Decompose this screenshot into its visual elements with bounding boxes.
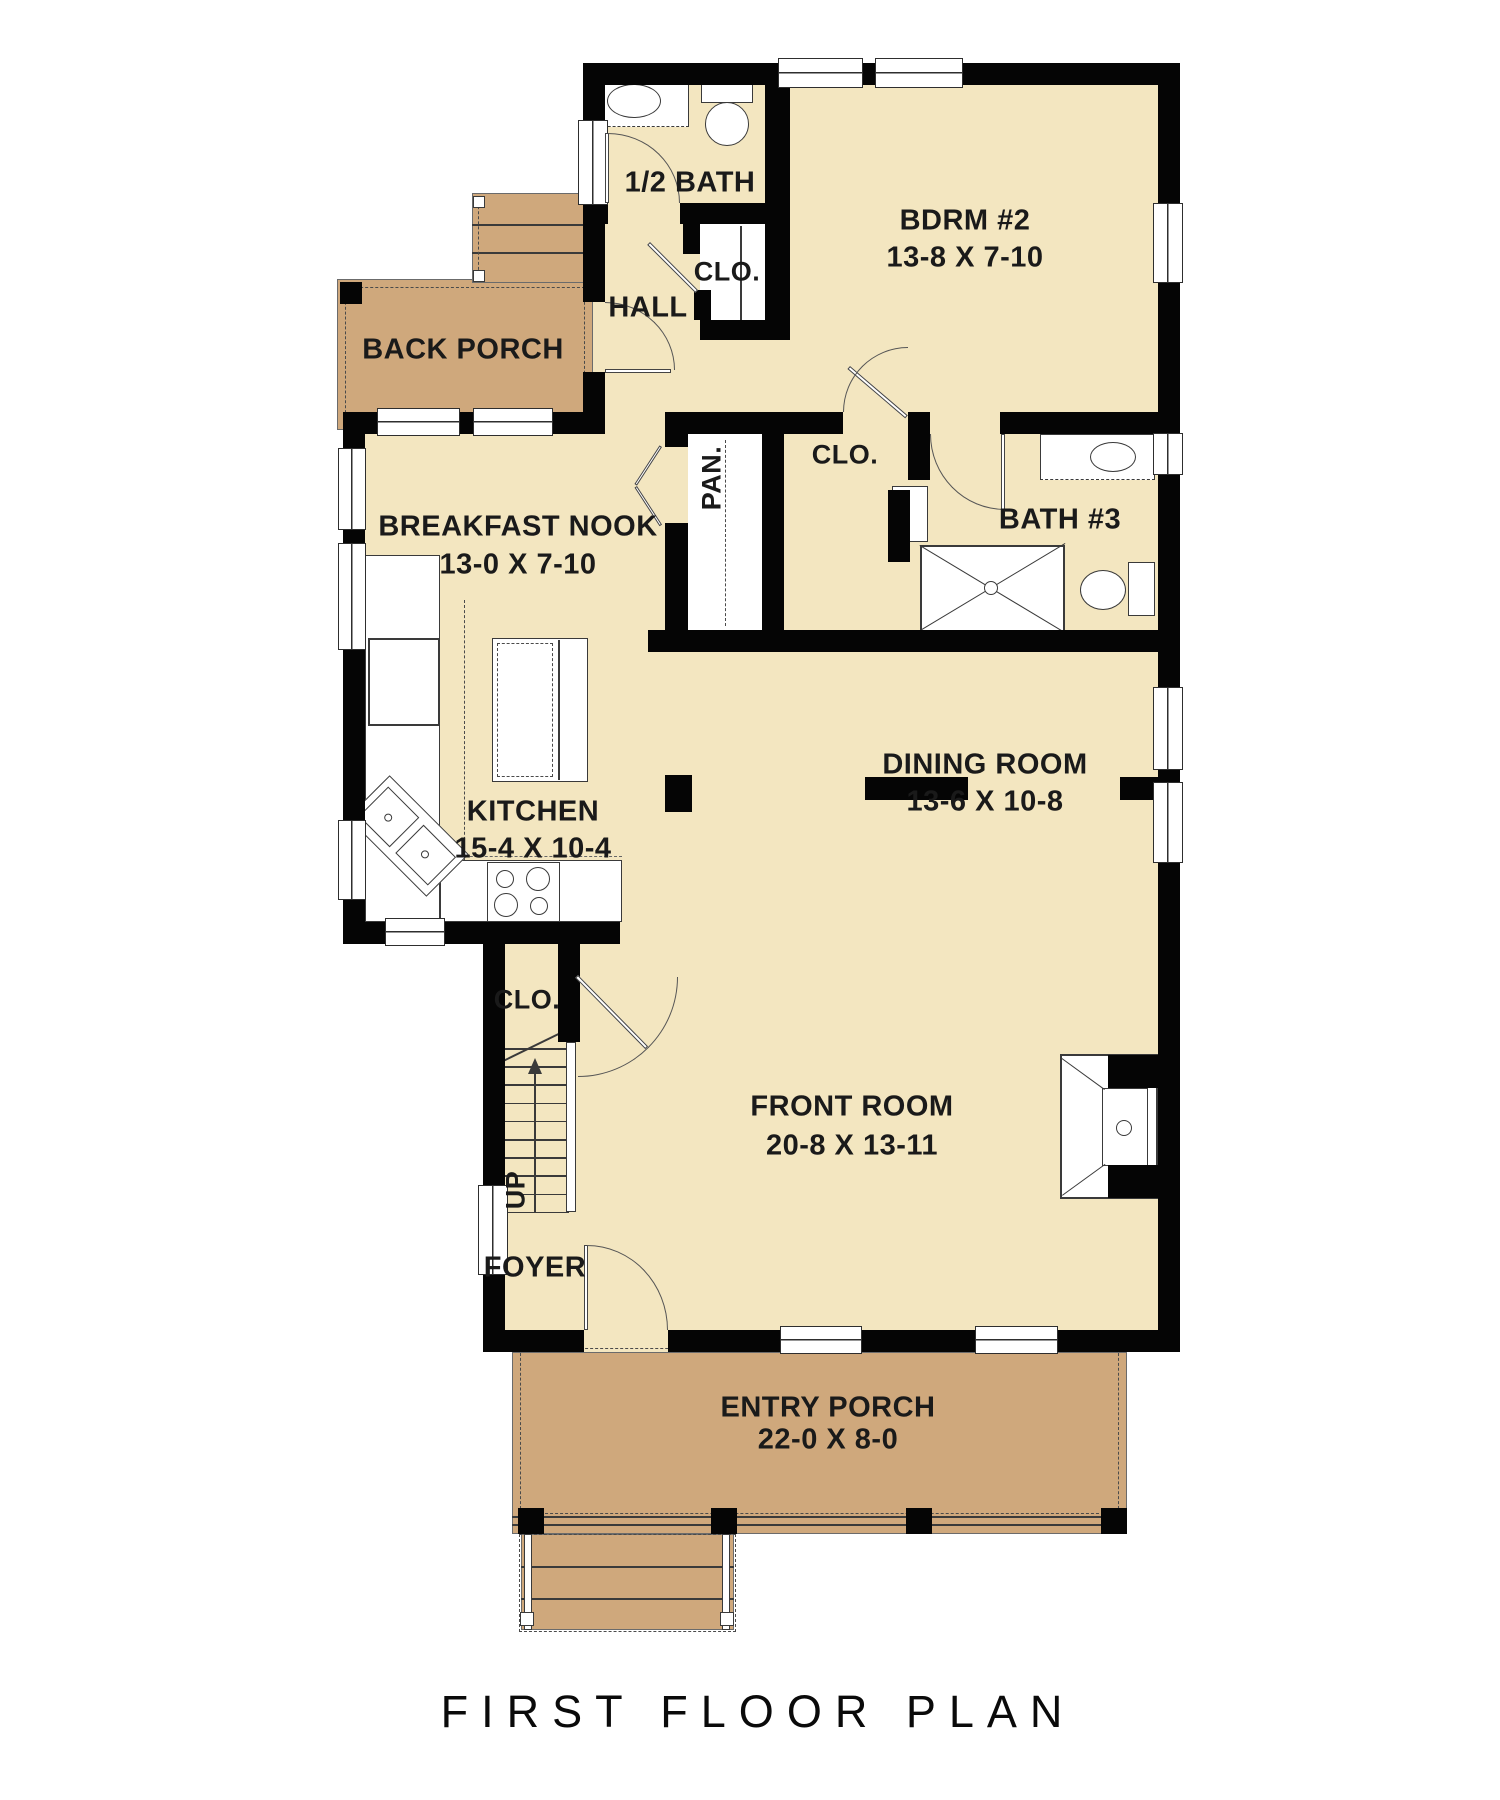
porch-post: [518, 1508, 544, 1534]
stair-tread: [505, 1157, 569, 1159]
wall-segment: [683, 222, 700, 254]
porch-rail: [512, 1516, 1127, 1518]
room-label-front-room: FRONT ROOM: [750, 1091, 953, 1124]
wall-segment: [665, 775, 692, 812]
wall-segment: [668, 1330, 780, 1352]
room-label-kitchen: KITCHEN: [467, 796, 599, 829]
steps-edge-dashed: [519, 1534, 736, 1632]
stairs-up-label: UP: [501, 1171, 532, 1210]
stair-tread: [505, 1212, 569, 1214]
wall-segment: [343, 922, 385, 944]
wall-segment: [460, 412, 473, 434]
window: [1153, 203, 1183, 283]
room-label-entry-porch: ENTRY PORCH: [721, 1392, 936, 1425]
burner: [496, 870, 514, 888]
floor-plan: 1/2 BATH HALL CLO. BDRM #2 13-8 X 7-10 B…: [0, 0, 1500, 1800]
porch-newel-post: [520, 1612, 534, 1626]
window: [1153, 433, 1183, 475]
step-line: [521, 1598, 734, 1600]
room-label-dining: DINING ROOM: [882, 749, 1087, 782]
room-label-half-bath: 1/2 BATH: [625, 167, 756, 200]
wall-segment: [445, 922, 620, 944]
stair-arrow-head: [528, 1058, 542, 1074]
wall-segment: [343, 650, 365, 820]
room-dims-kitchen: 15-4 X 10-4: [454, 833, 611, 866]
burner: [494, 893, 518, 917]
step-line: [472, 224, 593, 226]
fireplace-flue: [1116, 1120, 1132, 1136]
window: [1153, 782, 1183, 863]
window: [338, 448, 366, 530]
room-label-back-porch: BACK PORCH: [362, 334, 564, 367]
window: [578, 120, 608, 205]
wall-segment: [1058, 1330, 1180, 1352]
wall-segment: [762, 412, 784, 652]
porch-rail: [512, 1524, 1127, 1526]
wall-segment: [483, 944, 505, 1185]
window: [778, 58, 863, 88]
room-dims-front-room: 20-8 X 13-11: [766, 1130, 938, 1163]
room-label-bdrm2: BDRM #2: [900, 205, 1031, 238]
wall-segment: [483, 1275, 505, 1352]
wall-segment: [1108, 1055, 1158, 1088]
window: [338, 543, 366, 650]
stair-tread: [505, 1048, 569, 1050]
page-title: FIRST FLOOR PLAN: [441, 1686, 1076, 1738]
toilet-bowl: [705, 102, 749, 146]
porch-post: [1101, 1508, 1127, 1534]
step-line: [472, 252, 593, 254]
window: [385, 918, 445, 946]
toilet-bowl: [1080, 570, 1126, 610]
step-line: [521, 1566, 734, 1568]
window: [975, 1326, 1058, 1354]
stair-tread: [505, 1084, 569, 1086]
room-label-pantry: PAN.: [697, 446, 728, 511]
shower-drain: [984, 581, 998, 595]
wall-segment: [908, 412, 930, 480]
wall-segment: [1158, 475, 1180, 687]
upper-cabinet-dashed: [464, 600, 465, 860]
wall-segment: [665, 412, 688, 447]
wall-segment: [862, 1330, 975, 1352]
wall-segment: [1158, 63, 1180, 203]
window: [875, 58, 963, 88]
stair-tread: [505, 1121, 569, 1123]
back-porch-steps: [472, 193, 593, 283]
wall-segment: [583, 372, 605, 434]
wall-segment: [1158, 283, 1180, 433]
window: [473, 408, 553, 436]
bath3-sink: [1090, 442, 1136, 472]
refrigerator: [368, 638, 440, 726]
window: [1153, 687, 1183, 770]
wall-segment: [888, 490, 910, 562]
room-label-hall: HALL: [608, 292, 687, 325]
wall-segment: [765, 63, 790, 340]
room-label-hall-closet: CLO.: [694, 257, 761, 288]
room-label-bath3-closet: CLO.: [812, 440, 879, 471]
wall-segment: [583, 203, 608, 224]
porch-newel-post: [473, 196, 485, 208]
porch-post: [711, 1508, 737, 1534]
porch-post: [906, 1508, 932, 1534]
wall-segment: [863, 63, 875, 85]
wall-segment: [1000, 412, 1180, 434]
wall-segment: [343, 412, 377, 434]
wall-segment: [963, 63, 1180, 85]
wall-segment: [1108, 1165, 1158, 1198]
toilet-tank: [1128, 562, 1155, 616]
step-rail-dashed: [478, 196, 479, 280]
stair-tread: [505, 1103, 569, 1105]
room-label-stairs-closet: CLO.: [494, 985, 561, 1016]
wall-segment: [1158, 863, 1180, 1352]
room-dims-bdrm2: 13-8 X 7-10: [886, 242, 1043, 275]
room-label-breakfast-nook: BREAKFAST NOOK: [378, 511, 657, 544]
burner: [530, 897, 548, 915]
wall-segment: [700, 320, 790, 340]
porch-newel-post: [720, 1612, 734, 1626]
burner: [526, 867, 550, 891]
stair-rail: [566, 1042, 576, 1212]
room-dims-breakfast-nook: 13-0 X 7-10: [439, 549, 596, 582]
window: [780, 1326, 862, 1354]
island-counter-line: [558, 640, 560, 780]
room-dims-dining: 13-6 X 10-8: [906, 786, 1063, 819]
stair-arrow-shaft: [534, 1072, 536, 1212]
stove: [487, 862, 560, 922]
wall-segment: [343, 530, 365, 543]
wall-segment: [583, 63, 778, 85]
room-label-foyer: FOYER: [484, 1252, 586, 1285]
wall-segment: [648, 630, 784, 652]
island-overhang-dashed: [497, 643, 553, 777]
half-bath-sink: [607, 84, 661, 118]
wall-segment: [558, 944, 580, 1042]
stair-tread: [505, 1139, 569, 1141]
wall-segment: [784, 630, 1180, 652]
room-label-bath3: BATH #3: [999, 504, 1121, 537]
wall-segment: [583, 63, 605, 120]
window: [338, 820, 366, 900]
porch-post: [340, 282, 362, 304]
room-dims-entry-porch: 22-0 X 8-0: [758, 1424, 898, 1457]
window: [377, 408, 460, 436]
porch-newel-post: [473, 270, 485, 282]
wall-segment: [694, 290, 711, 320]
